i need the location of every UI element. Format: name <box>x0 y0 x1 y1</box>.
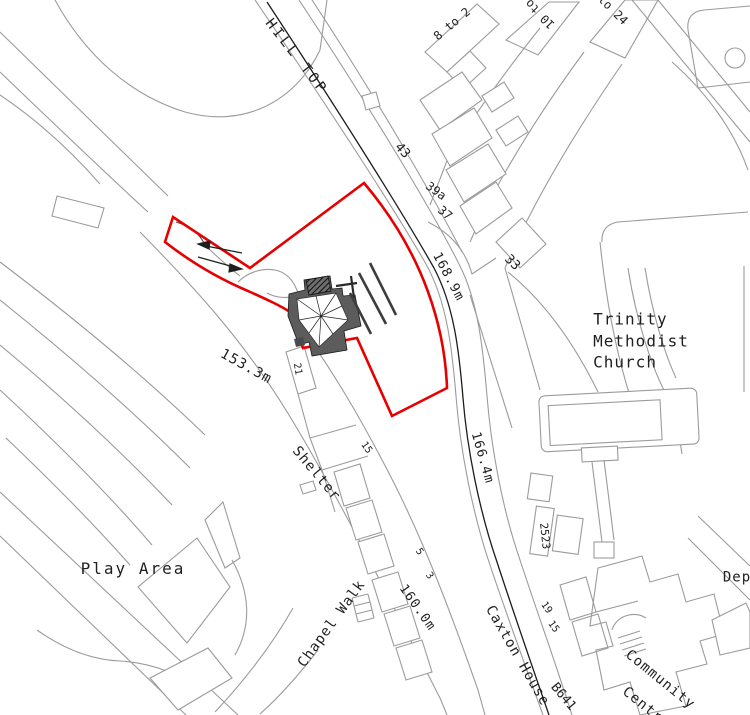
proposed-building <box>288 276 361 356</box>
site-location-plan: HILL TOP8 to 210 toto 244339a3733168.9m1… <box>0 0 750 715</box>
kerb-arc <box>176 222 205 245</box>
access-direction-arrows <box>198 241 242 272</box>
map-base-lines <box>0 0 750 715</box>
map-linework <box>0 0 750 715</box>
